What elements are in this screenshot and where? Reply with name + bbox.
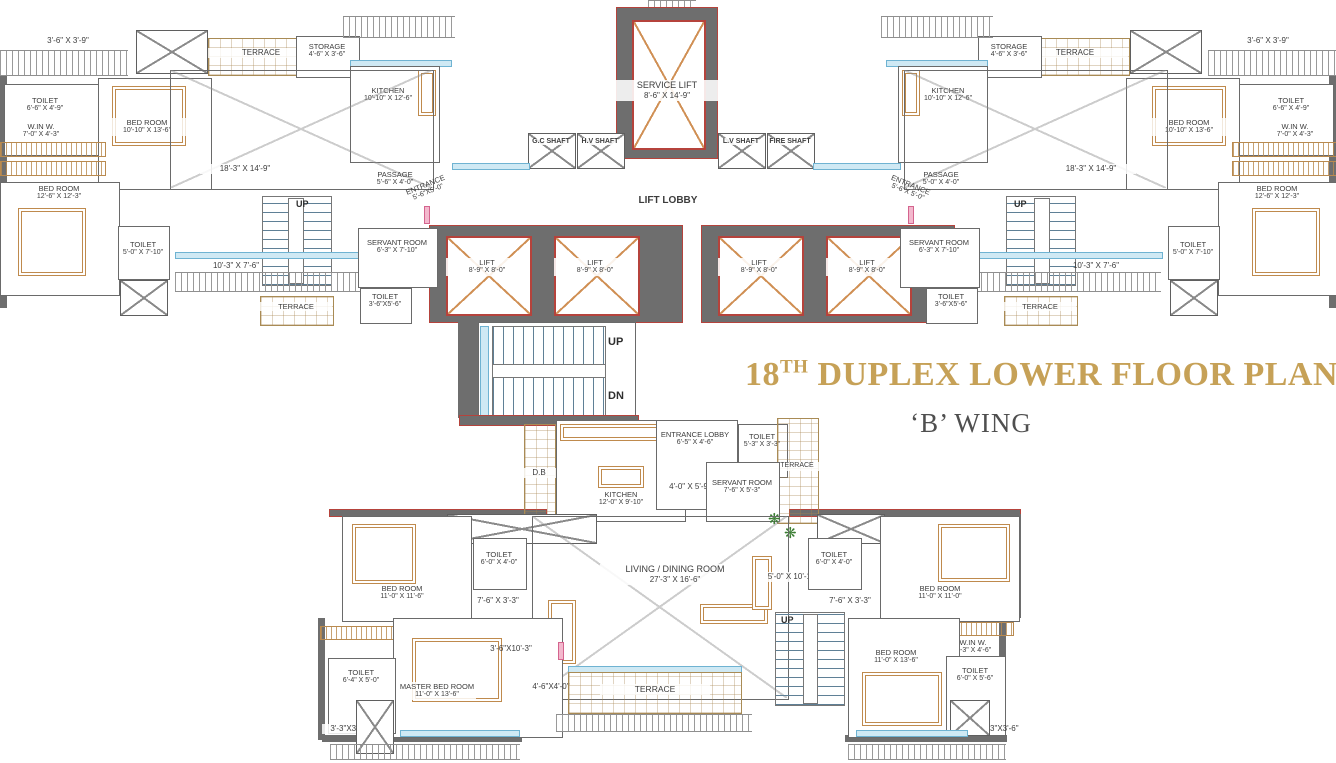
lu-terrace-side — [777, 418, 819, 524]
lw-toilet1-label: TOILET6'-6" X 4'-9" — [12, 96, 78, 114]
lift-3-label: LIFT8'-9" X 8'-0" — [718, 258, 800, 276]
stair-wall-left — [458, 322, 478, 418]
rw-entrance-door — [908, 206, 914, 224]
hatch-right-corner — [1208, 50, 1336, 76]
rw-toilet2-label: TOILET5'-0" X 7'-10" — [1168, 240, 1218, 258]
lw-balcony-dim: 10'-3" X 7'-6" — [196, 261, 276, 271]
hatch-lu-bottom-left — [330, 744, 520, 760]
rw-wardrobe-1 — [1232, 142, 1336, 157]
rw-shaft-bottom — [1170, 280, 1218, 316]
lw-terrace2-label: TERRACE — [260, 302, 332, 311]
window-lobby-left — [452, 163, 530, 170]
stair-dn-label: DN — [608, 390, 624, 402]
stair-up-label: UP — [608, 336, 623, 348]
rw-stair-up-label: UP — [1014, 199, 1027, 209]
lw-winw-label: W.IN W.7'-0" X 4'-3" — [8, 122, 74, 140]
lu-stair-up-label: UP — [781, 615, 794, 625]
hv-shaft-label: H.V SHAFT — [577, 138, 623, 147]
lv-shaft-label: L.V SHAFT — [718, 138, 764, 147]
rw-toilet1-label: TOILET6'-6" X 4'-9" — [1258, 96, 1324, 114]
lu-pass-right-dim: 7'-6" X 3'-3" — [820, 596, 880, 606]
rw-servant-label: SERVANT ROOM6'-3" X 7'-10" — [904, 238, 974, 256]
lw-storage-label: STORAGE4'-6" X 3'-6" — [296, 42, 358, 60]
main-stair-landing — [492, 364, 606, 378]
hatch-lu-bottom-right — [848, 744, 1006, 760]
rw-bedroom2-label: BED ROOM12'-6" X 12'-3" — [1232, 184, 1322, 202]
lw-corner-dim: 3'-6" X 3'-9" — [28, 36, 108, 46]
lw-toilet3-label: TOILET3'-6"X5'-6" — [360, 292, 410, 310]
lu-master-door — [558, 642, 564, 660]
lu-sofa-2 — [752, 556, 772, 610]
rw-balcony-dim: 10'-3" X 7'-6" — [1056, 261, 1136, 271]
rw-storage-label: STORAGE4'-6" X 3'-6" — [978, 42, 1040, 60]
window-lobby-right — [813, 163, 901, 170]
lift-4-label: LIFT8'-9" X 8'-0" — [826, 258, 908, 276]
hatch-rw-balcony — [969, 272, 1161, 292]
lu-kitchen-island — [598, 466, 644, 488]
lu-bedroom-right-top-bed — [938, 524, 1010, 582]
hatch-right-kitchen — [881, 16, 993, 38]
rw-terrace2-label: TERRACE — [1004, 302, 1076, 311]
lw-toilet2-label: TOILET5'-0" X 7'-10" — [118, 240, 168, 258]
lw-wardrobe-1 — [0, 142, 106, 157]
rw-duct-shaft — [1130, 30, 1202, 74]
window-lu-bedroom-right — [856, 730, 968, 737]
floor-plan: 18TH DUPLEX LOWER FLOOR PLAN ‘B’ WING SE… — [0, 0, 1336, 763]
lu-bedroom-left-label: BED ROOM11'-0" X 11'-6" — [358, 584, 446, 602]
hatch-left-corner — [0, 50, 128, 76]
rw-corner-dim: 3'-6" X 3'-9" — [1228, 36, 1308, 46]
lu-toilet-left-label: TOILET6'-0" X 4'-0" — [473, 550, 525, 568]
rw-bedroom2-bed — [1252, 208, 1320, 276]
lw-bedroom2-bed — [18, 208, 86, 276]
lu-bedroom-right-bed — [862, 672, 942, 726]
lu-bedroom-left-bed — [352, 524, 416, 584]
lu-toilet-right-label: TOILET6'-0" X 4'-0" — [808, 550, 860, 568]
title-ordinal: TH — [780, 357, 808, 378]
window-rw-balcony — [969, 252, 1163, 259]
lift-lobby-label: LIFT LOBBY — [608, 195, 728, 208]
lw-wardrobe-2 — [0, 161, 106, 176]
rw-living-dim: 18'-3" X 14'-9" — [1046, 164, 1136, 174]
rw-toilet3-label: TOILET3'-6"X5'-6" — [926, 292, 976, 310]
window-lw-balcony — [175, 252, 369, 259]
lu-toilet-br-label: TOILET6'-0" X 5'-6" — [946, 666, 1004, 684]
title-floor-number: 18 — [745, 356, 780, 393]
window-lu-master — [400, 730, 520, 737]
hatch-left-kitchen — [343, 16, 455, 38]
lw-servant-room — [358, 228, 438, 288]
lw-stair-up-label: UP — [296, 199, 309, 209]
lw-living-dim: 18'-3" X 14'-9" — [200, 164, 290, 174]
gc-shaft-label: G.C SHAFT — [528, 138, 574, 147]
lu-stair-mid — [803, 614, 818, 704]
service-lift-label: SERVICE LIFT 8'-6" X 14'-9" — [607, 80, 727, 101]
lu-toilet-master-label: TOILET6'-4" X 5'-0" — [330, 668, 392, 686]
page-title: 18TH DUPLEX LOWER FLOOR PLAN — [745, 356, 1336, 394]
lu-dim-c: 3'-6"X10'-3" — [482, 644, 540, 654]
lift-1-label: LIFT8'-9" X 8'-0" — [446, 258, 528, 276]
lw-bedroom2-label: BED ROOM12'-6" X 12'-3" — [14, 184, 104, 202]
rw-winw-label: W.IN W.7'-0" X 4'-3" — [1262, 122, 1328, 140]
lu-pass-left-dim: 7'-6" X 3'-3" — [468, 596, 528, 606]
window-stair — [480, 326, 489, 418]
lift-2-label: LIFT8'-9" X 8'-0" — [554, 258, 636, 276]
rw-servant-room — [900, 228, 980, 288]
lw-entrance-door — [424, 206, 430, 224]
rw-wardrobe-2 — [1232, 161, 1336, 176]
lu-terrace-label: TERRACE — [600, 684, 710, 695]
lu-living-label: LIVING / DINING ROOM 27'-3" X 16'-6" — [600, 564, 750, 585]
lu-bedroom-right-top-label: BED ROOM11'-0" X 11'-0" — [896, 584, 984, 602]
hatch-lw-balcony — [175, 272, 367, 292]
lu-entrance-lobby-label: ENTRANCE LOBBY6'-5" X 4'-6" — [658, 430, 732, 448]
lu-servant-label: SERVANT ROOM7'-6" X 5'-3" — [708, 478, 776, 496]
lw-servant-label: SERVANT ROOM6'-3" X 7'-10" — [362, 238, 432, 256]
lu-kitchen-label: KITCHEN12'-0" X 9'-10" — [586, 490, 656, 508]
fire-shaft-label: FIRE SHAFT — [767, 138, 813, 147]
lw-shaft-bottom — [120, 280, 168, 316]
lu-db-label: D.B — [522, 468, 556, 478]
lw-duct-shaft — [136, 30, 208, 74]
hatch-lu-terrace — [556, 714, 752, 732]
lu-bedroom-right-label: BED ROOM11'-0" X 13'-6" — [852, 648, 940, 666]
title-text: DUPLEX LOWER FLOOR PLAN — [817, 356, 1336, 393]
lu-master-label: MASTER BED ROOM11'-0" X 13'-6" — [398, 682, 476, 700]
